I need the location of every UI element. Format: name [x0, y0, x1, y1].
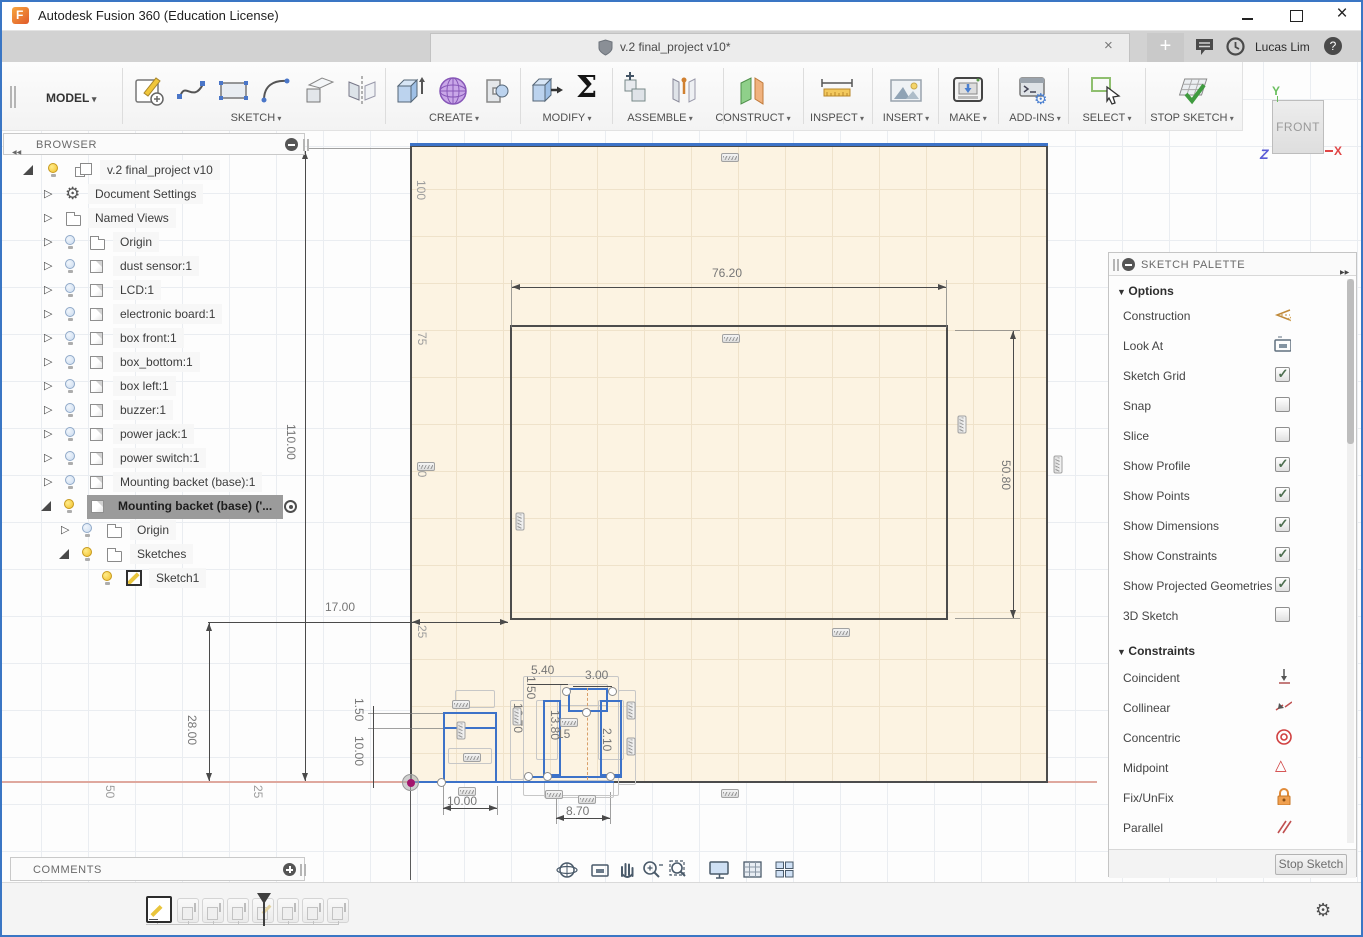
timeline-settings-gear-icon[interactable]	[1315, 900, 1331, 921]
tab-close-icon[interactable]	[1104, 37, 1113, 54]
constraint-icon[interactable]	[832, 628, 850, 637]
dimension-label[interactable]: 15	[557, 727, 570, 741]
body-icon	[91, 500, 104, 513]
sketch-point[interactable]	[543, 772, 552, 781]
visibility-bulb-icon[interactable]	[65, 307, 75, 317]
constraint-icon[interactable]	[958, 416, 967, 434]
body-icon	[90, 404, 103, 417]
body-icon	[90, 332, 103, 345]
origin-point[interactable]	[407, 779, 415, 787]
tree-item[interactable]: box_bottom:1	[3, 351, 305, 375]
lock-icon[interactable]	[1274, 787, 1292, 805]
press-pull-icon[interactable]	[527, 72, 565, 110]
dim-ext	[511, 280, 512, 328]
tree-item[interactable]: power switch:1	[3, 447, 305, 471]
dimension-label[interactable]: 5.40	[531, 663, 554, 677]
body-icon	[90, 476, 103, 489]
folder-icon	[90, 239, 105, 250]
snap-checkbox[interactable]	[1275, 397, 1290, 412]
concentric-icon[interactable]	[1274, 727, 1292, 745]
dim-arrow	[1010, 331, 1016, 339]
dim-arrow	[412, 619, 420, 625]
option-label: Show Points	[1123, 489, 1190, 503]
comments-title: COMMENTS	[33, 864, 102, 876]
grid-ruler-label: 25	[251, 785, 265, 798]
tree-item-label[interactable]: Named Views	[88, 208, 176, 228]
constraint-icon[interactable]	[457, 722, 466, 740]
tree-item-label[interactable]: box front:1	[113, 328, 184, 348]
tree-item-label[interactable]: Origin	[113, 232, 159, 252]
visibility-bulb-icon[interactable]	[82, 523, 92, 533]
collapsed-arrow-icon[interactable]	[61, 523, 69, 536]
display-settings-icon[interactable]	[708, 859, 732, 881]
3d-sketch-checkbox[interactable]	[1275, 607, 1290, 622]
dim-ext	[443, 786, 444, 815]
body-icon	[90, 428, 103, 441]
visibility-bulb-icon[interactable]	[65, 379, 75, 389]
slice-checkbox[interactable]	[1275, 427, 1290, 442]
timeline-tick	[238, 921, 239, 925]
body-icon	[90, 260, 103, 273]
comments-header: COMMENTS	[10, 857, 305, 881]
visibility-bulb-icon[interactable]	[65, 427, 75, 437]
dim-arrow	[602, 815, 610, 821]
tree-item-selected[interactable]: Mounting backet (base) ('...	[3, 495, 305, 519]
pan-hand-icon[interactable]	[616, 859, 638, 881]
insert-image-icon[interactable]	[887, 72, 925, 110]
y-axis-stem	[1277, 96, 1278, 102]
sketch-point[interactable]	[437, 778, 446, 787]
timeline-feature-extrude[interactable]	[302, 898, 324, 923]
visibility-bulb-icon[interactable]	[65, 331, 75, 341]
tree-item[interactable]: Sketches	[3, 543, 305, 567]
3d-print-icon[interactable]	[949, 72, 987, 110]
project-icon[interactable]	[300, 72, 338, 110]
tree-item-label[interactable]: box left:1	[113, 376, 176, 396]
tree-item[interactable]: dust sensor:1	[3, 255, 305, 279]
sketch-point[interactable]	[582, 708, 591, 717]
dim-line[interactable]	[208, 622, 508, 623]
toolbar-group-stop-sketch[interactable]: STOP SKETCH	[1122, 112, 1262, 124]
visibility-bulb-icon[interactable]	[65, 259, 75, 269]
toolbar-grip[interactable]	[10, 86, 12, 108]
show-projected-geometries-checkbox[interactable]	[1275, 577, 1290, 592]
dimension-label[interactable]: 1.50	[524, 676, 538, 699]
constraint-icon[interactable]	[417, 462, 435, 471]
panel-grip[interactable]	[300, 864, 302, 876]
revolve-icon[interactable]	[478, 72, 516, 110]
constraint-icon[interactable]	[513, 708, 522, 726]
show-dimensions-checkbox[interactable]	[1275, 517, 1290, 532]
selected-sketch-line[interactable]	[410, 143, 1048, 146]
construction-plane-icon[interactable]	[734, 72, 772, 110]
visibility-bulb-icon[interactable]	[65, 403, 75, 413]
dim-ext	[368, 713, 445, 714]
dim-arrow	[1010, 610, 1016, 618]
tree-item[interactable]: Origin	[3, 519, 305, 543]
dimension-label[interactable]: 76.20	[712, 266, 742, 280]
collapsed-arrow-icon[interactable]	[44, 259, 52, 272]
panel-grip[interactable]	[1113, 259, 1115, 271]
viewcube-x-axis-label: X	[1334, 144, 1342, 158]
grid-ruler-label: 25	[415, 625, 429, 638]
option-label: Snap	[1123, 399, 1151, 413]
viewcube-y-axis-label: Y	[1272, 84, 1280, 98]
tree-item[interactable]: box front:1	[3, 327, 305, 351]
window-title: Autodesk Fusion 360 (Education License)	[38, 8, 279, 23]
midpoint-icon[interactable]	[1274, 757, 1292, 775]
comments-bubble-icon[interactable]	[1194, 37, 1216, 57]
constraint-icon[interactable]	[1054, 456, 1063, 474]
rectangle-icon[interactable]	[215, 72, 253, 110]
timeline-playhead-stem[interactable]	[263, 902, 265, 926]
dim-arrow	[500, 619, 508, 625]
show-constraints-checkbox[interactable]	[1275, 547, 1290, 562]
dim-line[interactable]	[512, 287, 946, 288]
dimension-label[interactable]: 3.00	[585, 668, 608, 682]
new-component-icon[interactable]	[619, 72, 657, 110]
tree-item-label[interactable]: Origin	[130, 520, 176, 540]
dim-arrow	[206, 773, 212, 781]
visibility-bulb-icon[interactable]	[102, 571, 112, 581]
orbit-icon[interactable]	[556, 859, 578, 881]
select-cursor-icon[interactable]	[1088, 72, 1126, 110]
x-axis-stem	[1325, 150, 1333, 152]
tree-item-label[interactable]: electronic board:1	[113, 304, 222, 324]
sketch-point[interactable]	[524, 772, 533, 781]
timeline-tick	[338, 921, 339, 925]
timeline-feature-extrude[interactable]	[202, 898, 224, 923]
look-at-icon[interactable]	[1273, 335, 1291, 353]
tree-item-label[interactable]: buzzer:1	[113, 400, 173, 420]
tree-item-label[interactable]: Mounting backet (base):1	[113, 472, 262, 492]
measure-icon[interactable]	[818, 72, 856, 110]
collapsed-arrow-icon[interactable]	[44, 283, 52, 296]
remove-panel-icon[interactable]	[1122, 258, 1135, 271]
viewports-icon[interactable]	[774, 859, 796, 881]
grid-ruler-label: 75	[415, 332, 429, 345]
timeline-feature-extrude[interactable]	[177, 898, 199, 923]
tree-item-label[interactable]: Sketches	[130, 544, 193, 564]
component-icon	[75, 167, 85, 177]
constraint-icon[interactable]	[560, 718, 578, 727]
constraint-icon[interactable]	[722, 334, 740, 343]
collapsed-arrow-icon[interactable]	[44, 307, 52, 320]
user-name[interactable]: Lucas Lim	[1255, 40, 1310, 54]
timeline-tick	[188, 921, 189, 925]
expanded-arrow-icon[interactable]	[41, 501, 51, 511]
folder-icon	[66, 215, 81, 226]
visibility-bulb-icon[interactable]	[65, 451, 75, 461]
browser-header: BROWSER	[3, 133, 305, 155]
form-icon[interactable]	[435, 72, 473, 110]
dim-ext	[368, 728, 445, 729]
parallel-icon[interactable]	[1274, 817, 1292, 835]
tree-item[interactable]: Origin	[3, 231, 305, 255]
collapsed-arrow-icon[interactable]	[44, 403, 52, 416]
options-section-header[interactable]: Options	[1117, 284, 1174, 298]
constraint-icon[interactable]	[452, 700, 470, 709]
tree-item[interactable]: box left:1	[3, 375, 305, 399]
browser-title: BROWSER	[36, 139, 97, 151]
visibility-bulb-icon[interactable]	[65, 235, 75, 245]
sketch-palette: SKETCH PALETTE Options Construction Look…	[1108, 252, 1357, 877]
dim-ext	[946, 280, 947, 328]
fusion360-window: FRONT Y Z X 110.00 76.20 50.80 17.00 28.…	[0, 0, 1363, 937]
activate-component-radio[interactable]	[284, 500, 297, 513]
collapsed-arrow-icon[interactable]	[44, 355, 52, 368]
sketch-icon	[126, 570, 142, 586]
tree-item[interactable]: power jack:1	[3, 423, 305, 447]
viewcube-front-face[interactable]: FRONT	[1273, 120, 1323, 134]
option-label: Sketch Grid	[1123, 369, 1186, 383]
dim-line[interactable]	[305, 151, 306, 781]
window-border	[0, 0, 2, 937]
constraint-icon[interactable]	[721, 153, 739, 162]
tree-item[interactable]: LCD:1	[3, 279, 305, 303]
timeline-tick	[288, 921, 289, 925]
collinear-icon[interactable]	[1274, 697, 1292, 715]
dimension-label[interactable]: 17.00	[325, 600, 355, 614]
spline-icon[interactable]	[173, 72, 211, 110]
option-label: Construction	[1123, 309, 1190, 323]
title-bar: Autodesk Fusion 360 (Education License)	[0, 0, 1363, 31]
job-status-clock-icon[interactable]	[1226, 37, 1246, 57]
tree-item-label[interactable]: power switch:1	[113, 448, 206, 468]
timeline-tick	[213, 921, 214, 925]
scripts-addins-icon[interactable]: ⚙	[1016, 72, 1054, 110]
constraint-icon[interactable]	[721, 789, 739, 798]
expand-panel-icon[interactable]	[1340, 261, 1349, 279]
dimension-label[interactable]: 2.10	[600, 728, 614, 751]
constraint-label: Coincident	[1123, 671, 1180, 685]
dim-ext	[497, 786, 498, 815]
viewcube-z-axis-label: Z	[1260, 146, 1269, 162]
option-label: Show Dimensions	[1123, 519, 1219, 533]
visibility-bulb-icon[interactable]	[64, 499, 74, 509]
constraint-icon[interactable]	[458, 787, 476, 796]
sketch-point[interactable]	[562, 687, 571, 696]
dim-line[interactable]	[1013, 331, 1014, 618]
show-profile-checkbox[interactable]	[1275, 457, 1290, 472]
palette-scrollbar-thumb[interactable]	[1347, 279, 1354, 444]
constraint-icon[interactable]	[516, 513, 525, 531]
constraint-label: Concentric	[1123, 731, 1180, 745]
gear-icon	[65, 186, 80, 204]
option-label: Slice	[1123, 429, 1149, 443]
zoom-icon[interactable]	[641, 859, 665, 881]
dimension-label[interactable]: 10.00	[352, 736, 366, 766]
document-tab[interactable]	[430, 33, 1130, 62]
minimize-button[interactable]	[1232, 5, 1262, 25]
tree-item-label[interactable]: v.2 final_project v10	[100, 160, 220, 180]
collapsed-arrow-icon[interactable]	[44, 211, 52, 224]
body-icon	[90, 452, 103, 465]
constraint-icon[interactable]	[627, 702, 636, 720]
timeline-tick	[313, 921, 314, 925]
option-label: Show Projected Geometries	[1123, 579, 1272, 593]
dim-arrow	[556, 815, 564, 821]
collapsed-arrow-icon[interactable]	[44, 475, 52, 488]
dimension-label[interactable]: 28.00	[185, 715, 199, 745]
constraint-icon[interactable]	[463, 753, 481, 762]
option-label: Show Constraints	[1123, 549, 1217, 563]
sketch-blue-line[interactable]	[443, 727, 497, 729]
grid-display-icon[interactable]	[742, 859, 764, 881]
look-at-icon[interactable]	[590, 860, 612, 880]
collapsed-arrow-icon[interactable]	[44, 427, 52, 440]
sketch-palette-header: SKETCH PALETTE	[1109, 253, 1356, 276]
tree-item-label[interactable]: Mounting backet (base) ('...	[111, 496, 279, 516]
y-axis-line	[410, 782, 411, 880]
option-label: Show Profile	[1123, 459, 1190, 473]
add-comment-icon[interactable]	[283, 863, 296, 876]
tree-item[interactable]: electronic board:1	[3, 303, 305, 327]
sketch-grid-checkbox[interactable]	[1275, 367, 1290, 382]
dim-ext	[955, 618, 1020, 619]
body-icon	[90, 356, 103, 369]
maximize-button[interactable]	[1280, 5, 1310, 25]
visibility-bulb-icon[interactable]	[65, 475, 75, 485]
tree-item[interactable]: Sketch1	[3, 567, 305, 591]
constraints-section-header[interactable]: Constraints	[1117, 644, 1195, 658]
collapsed-arrow-icon[interactable]	[44, 235, 52, 248]
visibility-bulb-icon[interactable]	[48, 163, 58, 173]
option-label: 3D Sketch	[1123, 609, 1178, 623]
remove-panel-icon[interactable]	[285, 138, 298, 151]
dim-line[interactable]	[209, 623, 210, 781]
collapse-panel-icon[interactable]	[12, 141, 21, 159]
constraint-icon[interactable]	[545, 790, 563, 799]
create-sketch-icon[interactable]	[131, 72, 169, 110]
panel-grip[interactable]	[303, 139, 305, 151]
dimension-label[interactable]: 1.50	[352, 698, 366, 721]
body-icon	[90, 380, 103, 393]
constraint-icon[interactable]	[578, 795, 596, 804]
collapsed-arrow-icon[interactable]	[44, 187, 52, 200]
stop-sketch-icon[interactable]	[1173, 72, 1211, 110]
folder-icon	[107, 527, 122, 538]
tree-item-label[interactable]: LCD:1	[113, 280, 161, 300]
sketch-inner-rectangle[interactable]	[510, 325, 948, 620]
fusion-logo-icon	[12, 7, 29, 24]
svg-text:⚙: ⚙	[1034, 91, 1047, 108]
tree-item[interactable]: buzzer:1	[3, 399, 305, 423]
mirror-icon[interactable]	[343, 72, 381, 110]
dim-arrow	[206, 623, 212, 631]
sketch-palette-title: SKETCH PALETTE	[1141, 259, 1245, 271]
toolbar-group-sketch[interactable]: SKETCH	[186, 112, 326, 124]
visibility-bulb-icon[interactable]	[65, 283, 75, 293]
grid-ruler-label: 50	[103, 785, 117, 798]
timeline-feature-extrude[interactable]	[277, 898, 299, 923]
timeline-ruler	[146, 924, 338, 925]
joint-icon[interactable]	[665, 72, 703, 110]
body-icon	[90, 308, 103, 321]
tree-item[interactable]: Mounting backet (base):1	[3, 471, 305, 495]
document-shield-icon	[597, 39, 614, 56]
dim-arrow	[512, 284, 520, 290]
tree-item-label[interactable]: box_bottom:1	[113, 352, 200, 372]
dim-ext	[307, 148, 410, 149]
timeline-feature-sketch-active[interactable]	[146, 896, 172, 923]
tree-item[interactable]: Document Settings	[3, 183, 305, 207]
dimension-label[interactable]: 8.70	[566, 804, 589, 818]
collapsed-arrow-icon[interactable]	[44, 451, 52, 464]
constraint-label: Collinear	[1123, 701, 1170, 715]
dim-arrow	[938, 284, 946, 290]
document-tab-title[interactable]: v.2 final_project v10*	[620, 40, 731, 54]
constraint-label: Fix/UnFix	[1123, 791, 1174, 805]
workspace-selector[interactable]: MODEL	[46, 91, 96, 105]
close-button[interactable]	[1327, 5, 1357, 25]
sketch-point[interactable]	[608, 687, 617, 696]
help-icon[interactable]	[1324, 37, 1342, 55]
timeline-feature-extrude[interactable]	[327, 898, 349, 923]
tree-item-label[interactable]: Sketch1	[149, 568, 206, 588]
option-label: Look At	[1123, 339, 1163, 353]
tree-item-label[interactable]: Document Settings	[88, 184, 203, 204]
sketch-point[interactable]	[606, 772, 615, 781]
new-tab-button[interactable]	[1147, 33, 1184, 62]
body-icon	[90, 284, 103, 297]
dimension-label[interactable]: 10.00	[447, 794, 477, 808]
grid-ruler-label: 100	[414, 180, 428, 200]
timeline-feature-extrude[interactable]	[227, 898, 249, 923]
dimension-label[interactable]: 50.80	[999, 460, 1013, 490]
change-parameters-icon[interactable]	[571, 72, 609, 110]
visibility-bulb-icon[interactable]	[65, 355, 75, 365]
dim-ext	[955, 330, 1020, 331]
toolbar-divider	[122, 68, 123, 124]
dim-arrow	[302, 773, 308, 781]
construction-icon[interactable]	[1273, 305, 1291, 323]
tree-item[interactable]: Named Views	[3, 207, 305, 231]
construction-line[interactable]	[587, 688, 588, 780]
window-border	[0, 0, 1363, 2]
constraint-label: Parallel	[1123, 821, 1163, 835]
tree-item-label[interactable]: dust sensor:1	[113, 256, 199, 276]
tree-item-label[interactable]: power jack:1	[113, 424, 194, 444]
dim-line	[573, 686, 612, 687]
expanded-arrow-icon[interactable]	[59, 549, 69, 559]
zoom-fit-icon[interactable]	[668, 859, 690, 881]
show-points-checkbox[interactable]	[1275, 487, 1290, 502]
stop-sketch-button[interactable]: Stop Sketch	[1275, 854, 1347, 875]
viewcube[interactable]: FRONT	[1272, 100, 1324, 154]
dim-arrow	[489, 805, 497, 811]
expanded-arrow-icon[interactable]	[23, 165, 33, 175]
constraint-label: Midpoint	[1123, 761, 1168, 775]
dim-line[interactable]	[373, 706, 374, 788]
collapsed-arrow-icon[interactable]	[44, 331, 52, 344]
coincident-icon[interactable]	[1274, 667, 1292, 685]
sketch-blue-rect[interactable]	[443, 712, 497, 783]
constraint-icon[interactable]	[627, 738, 636, 756]
visibility-bulb-icon[interactable]	[82, 547, 92, 557]
folder-icon	[107, 551, 122, 562]
arc-icon[interactable]	[257, 72, 295, 110]
extrude-icon[interactable]	[391, 72, 429, 110]
tree-item[interactable]: v.2 final_project v10	[3, 159, 305, 183]
collapsed-arrow-icon[interactable]	[44, 379, 52, 392]
